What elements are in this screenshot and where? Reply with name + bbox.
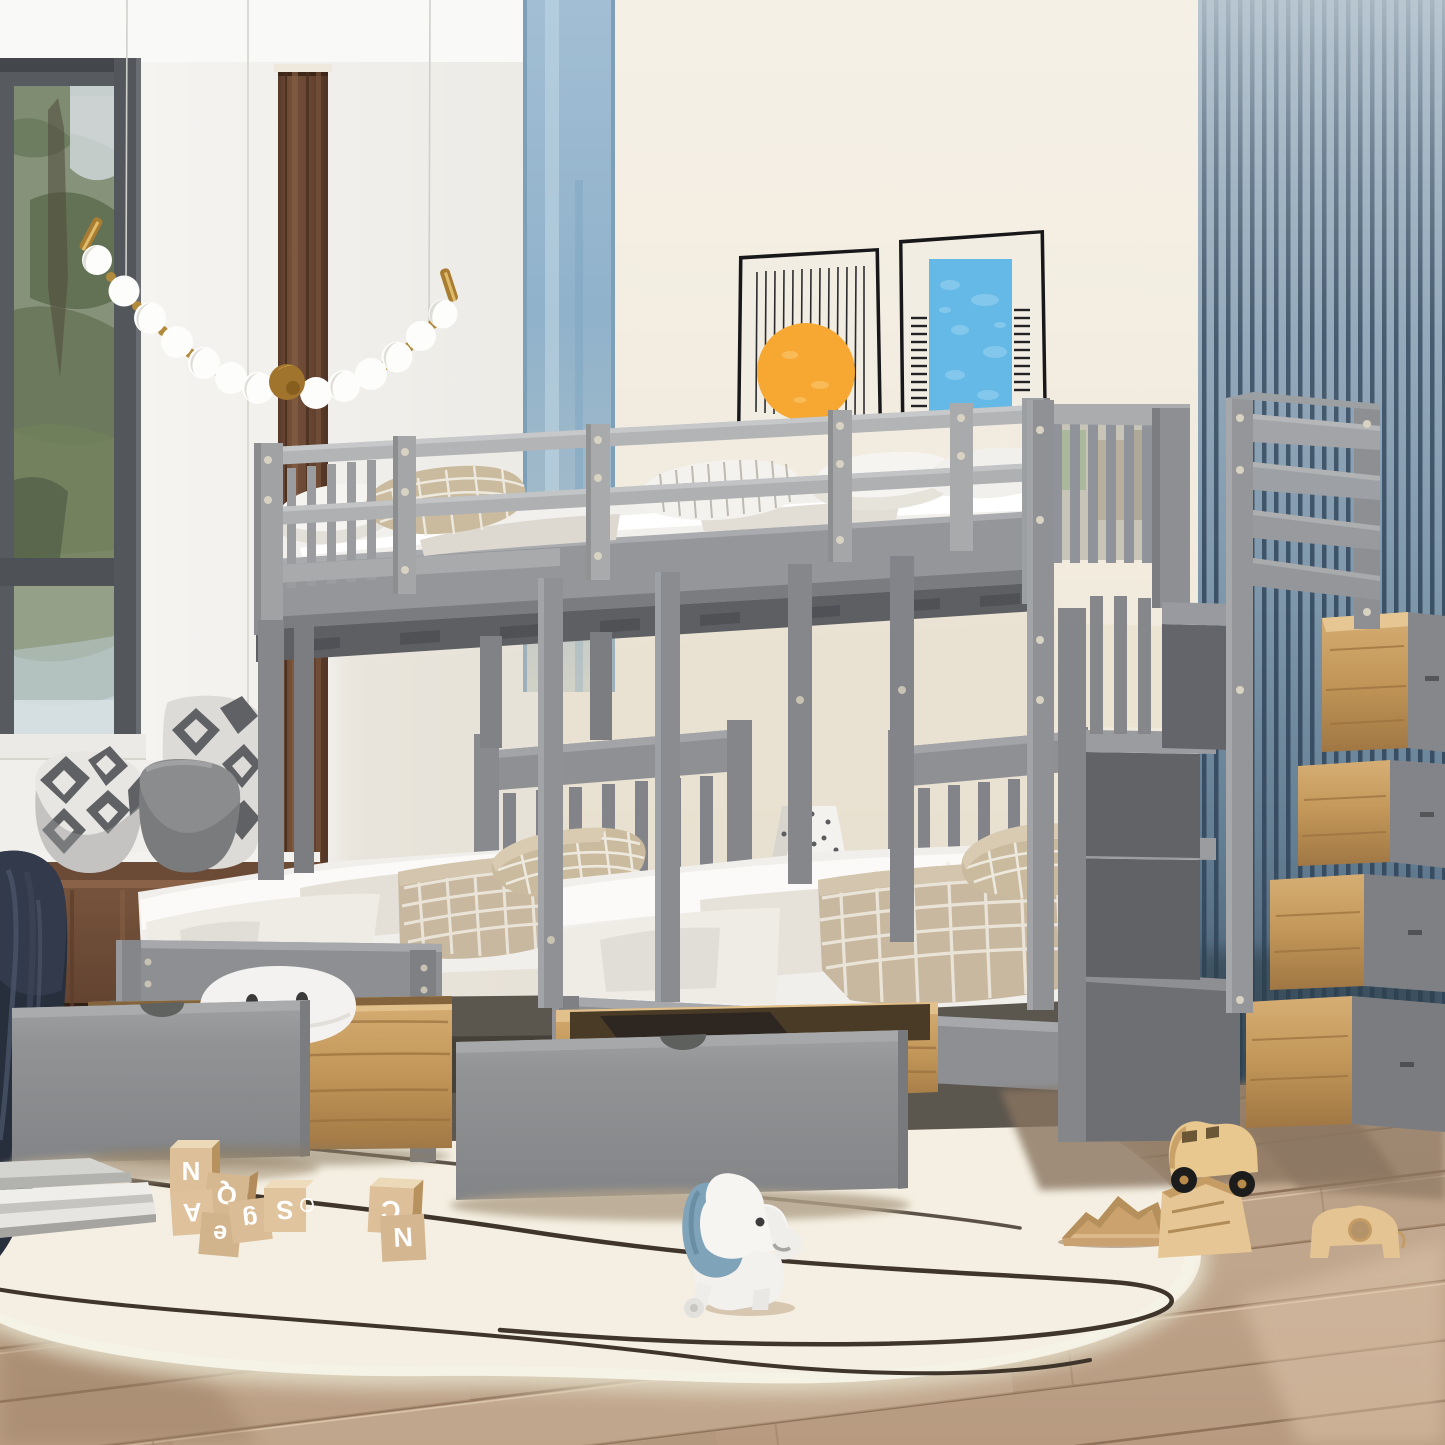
svg-text:S: S xyxy=(276,1195,293,1225)
svg-text:O: O xyxy=(299,1193,315,1215)
svg-text:e: e xyxy=(212,1219,228,1248)
svg-text:N: N xyxy=(182,1156,201,1186)
svg-text:A: A xyxy=(182,1197,203,1228)
svg-text:N: N xyxy=(393,1221,414,1252)
